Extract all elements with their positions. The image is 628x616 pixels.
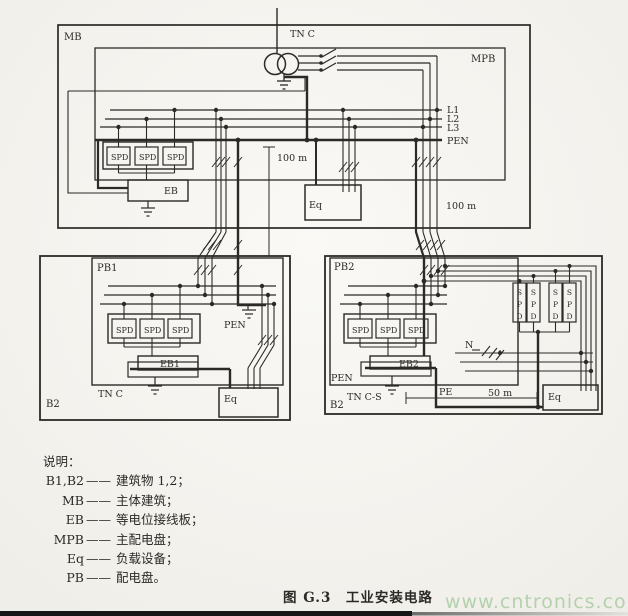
- dist-100m-left: 100 m: [277, 153, 307, 164]
- n-label: N: [465, 340, 473, 351]
- tnc-label-top: TN C: [290, 29, 315, 40]
- svg-text:S: S: [567, 288, 572, 297]
- legend-row-b1b2: B1,B2 —— 建筑物 1,2；: [46, 473, 190, 488]
- legend-dash: ——: [86, 512, 111, 527]
- legend-dash: ——: [86, 493, 111, 508]
- dist-50m-label: 50 m: [488, 388, 512, 399]
- eb-label: EB: [164, 186, 178, 197]
- eb2-label: EB2: [399, 359, 419, 370]
- svg-text:S: S: [531, 288, 536, 297]
- spd3-label-top: SPD: [167, 153, 184, 162]
- legend-def: 建筑物 1,2；: [116, 473, 190, 488]
- pb1-label: PB1: [97, 263, 117, 274]
- svg-text:S: S: [553, 288, 558, 297]
- legend-row-mb: MB —— 主体建筑；: [62, 493, 179, 508]
- svg-text:S: S: [517, 288, 522, 297]
- mb-label: MB: [64, 32, 82, 43]
- b2-corner-label: B2: [330, 400, 344, 411]
- legend-dash: ——: [86, 551, 111, 566]
- svg-text:D: D: [530, 312, 536, 321]
- tncs-label-b2: TN C-S: [347, 392, 382, 403]
- eq-label-top: Eq: [309, 200, 322, 211]
- legend-abbr: B1,B2: [46, 473, 84, 488]
- svg-text:P: P: [531, 300, 536, 309]
- pen-label-b2: PEN: [331, 373, 353, 384]
- legend-row-mpb: MPB —— 主配电盘；: [54, 532, 179, 547]
- legend-dash: ——: [86, 570, 111, 585]
- mpb-label: MPB: [471, 54, 495, 65]
- scanned-document-page: MB TN C MPB L1 L2 L3 PEN SPD SPD SPD EB …: [0, 0, 628, 616]
- legend-def: 负载设备；: [116, 551, 179, 566]
- legend-def: 主配电盘；: [116, 532, 179, 547]
- watermark-text: www.cntronics.com: [445, 591, 628, 613]
- svg-text:P: P: [553, 300, 558, 309]
- pen-label-b1: PEN: [224, 320, 246, 331]
- legend-def: 配电盘。: [116, 570, 166, 585]
- legend-row-pb: PB —— 配电盘。: [66, 570, 166, 585]
- circuit-diagram: MB TN C MPB L1 L2 L3 PEN SPD SPD SPD EB …: [0, 0, 628, 616]
- eb1-label: EB1: [160, 359, 180, 370]
- legend-abbr: Eq: [67, 551, 84, 566]
- svg-text:P: P: [517, 300, 522, 309]
- svg-text:P: P: [567, 300, 572, 309]
- svg-text:D: D: [566, 312, 572, 321]
- spd3-label-b2: SPD: [408, 326, 425, 335]
- spd3-label-b1: SPD: [172, 326, 189, 335]
- legend-row-eb: EB —— 等电位接线板；: [66, 512, 204, 527]
- spd1-label-top: SPD: [111, 153, 128, 162]
- spd2-label-top: SPD: [139, 153, 156, 162]
- dist-100m-right: 100 m: [446, 201, 476, 212]
- svg-text:D: D: [516, 312, 522, 321]
- legend-dash: ——: [86, 473, 111, 488]
- legend-abbr: EB: [66, 512, 84, 527]
- figure-caption: 图 G.3 工业安装电路: [283, 589, 433, 606]
- b1-corner-label: B2: [46, 399, 60, 410]
- eq-label-b1: Eq: [224, 394, 237, 405]
- switch-contact-dots: [319, 54, 323, 72]
- l3-label: L3: [447, 123, 459, 134]
- spd1-label-b2: SPD: [352, 326, 369, 335]
- eq-label-b2: Eq: [548, 392, 561, 403]
- svg-text:D: D: [552, 312, 558, 321]
- pb2-label: PB2: [334, 262, 354, 273]
- spd2-label-b2: SPD: [380, 326, 397, 335]
- legend-def: 主体建筑；: [116, 493, 179, 508]
- pe-label: PE: [439, 387, 452, 398]
- spd1-label-b1: SPD: [116, 326, 133, 335]
- legend-title: 说明：: [43, 454, 81, 469]
- legend-abbr: MB: [62, 493, 84, 508]
- legend-abbr: PB: [66, 570, 84, 585]
- bottom-scan-bar: [0, 611, 412, 616]
- tnc-label-b1: TN C: [98, 389, 123, 400]
- bottom-scan-bar-fade: [412, 612, 628, 616]
- legend-def: 等电位接线板；: [116, 512, 204, 527]
- legend-dash: ——: [86, 532, 111, 547]
- legend-abbr: MPB: [54, 532, 84, 547]
- legend-row-eq: Eq —— 负载设备；: [67, 551, 179, 566]
- spd2-label-b1: SPD: [144, 326, 161, 335]
- pen-label-top: PEN: [447, 136, 469, 147]
